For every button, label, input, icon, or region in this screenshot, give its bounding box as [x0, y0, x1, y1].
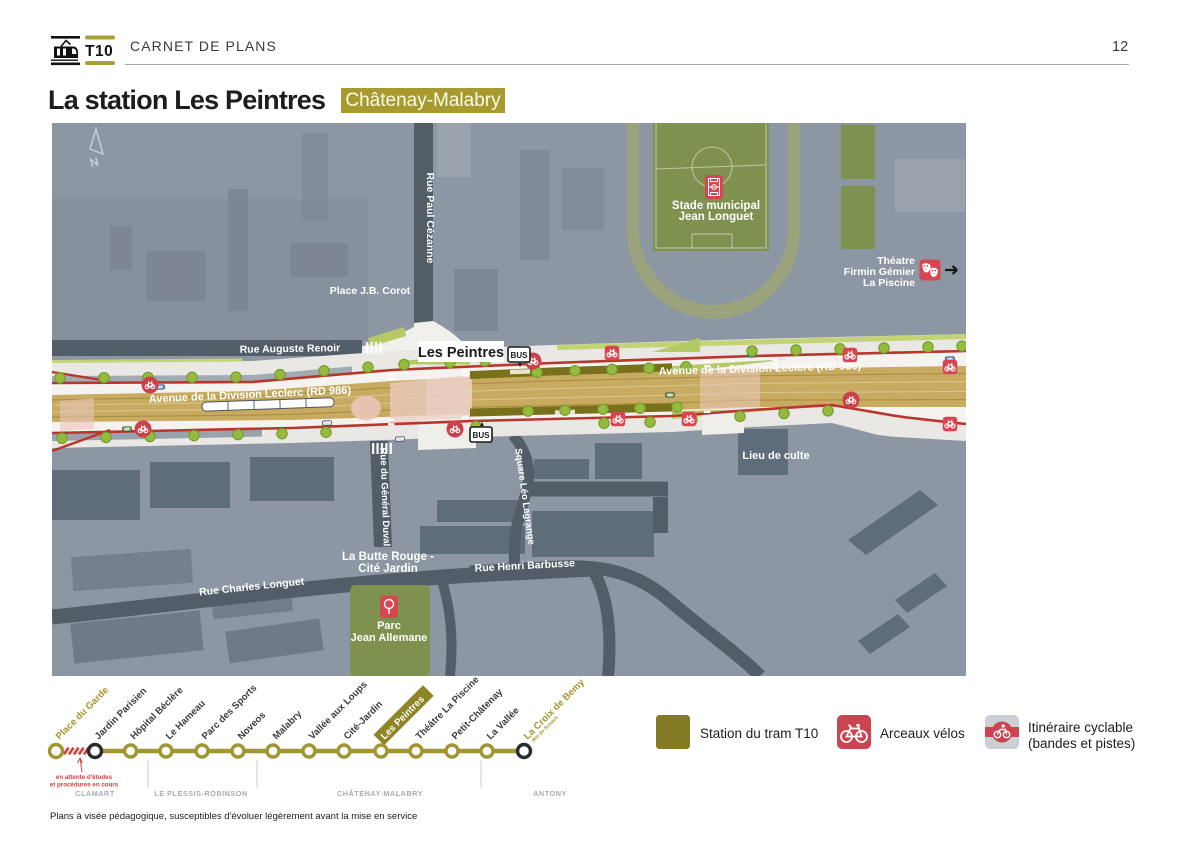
svg-text:Vallée aux Loups: Vallée aux Loups [307, 679, 370, 742]
svg-text:LE PLESSIS-ROBINSON: LE PLESSIS-ROBINSON [154, 789, 247, 798]
svg-text:La Butte Rouge -: La Butte Rouge - [342, 551, 434, 563]
svg-text:Malabry: Malabry [271, 708, 305, 742]
svg-text:Cité Jardin: Cité Jardin [358, 563, 417, 575]
svg-text:Rue Auguste Renoir: Rue Auguste Renoir [240, 342, 341, 356]
svg-text:Théâtre La Piscine: Théâtre La Piscine [414, 676, 482, 742]
svg-text:Place J.B. Corot: Place J.B. Corot [330, 285, 411, 297]
svg-text:Rue Paul Cézanne: Rue Paul Cézanne [424, 172, 436, 263]
svg-text:Itinéraire cyclable: Itinéraire cyclable [1028, 720, 1133, 735]
svg-text:Parc: Parc [377, 620, 401, 632]
svg-text:T10: T10 [85, 43, 113, 60]
svg-text:Les Peintres: Les Peintres [418, 345, 504, 361]
svg-text:La Croix de Bemy: La Croix de Bemy [522, 677, 588, 743]
svg-text:en attente d'études: en attente d'études [56, 774, 113, 781]
svg-text:Jean Longuet: Jean Longuet [679, 211, 754, 223]
svg-text:CHÂTENAY-MALABRY: CHÂTENAY-MALABRY [337, 789, 423, 798]
svg-text:(bandes et pistes): (bandes et pistes) [1028, 736, 1135, 751]
svg-text:CLAMART: CLAMART [75, 789, 115, 798]
svg-text:BUS: BUS [473, 431, 491, 440]
svg-text:Lieu de culte: Lieu de culte [742, 450, 809, 462]
svg-text:Station du tram T10: Station du tram T10 [700, 726, 818, 741]
svg-text:Noveos: Noveos [236, 710, 268, 742]
svg-text:Arceaux vélos: Arceaux vélos [880, 726, 965, 741]
svg-text:La Piscine: La Piscine [863, 277, 915, 289]
svg-text:et procédures en cours: et procédures en cours [50, 782, 119, 789]
svg-text:Jean Allemane: Jean Allemane [351, 632, 428, 644]
svg-text:La Vallée: La Vallée [485, 705, 522, 742]
svg-text:ANTONY: ANTONY [533, 789, 567, 798]
svg-text:BUS: BUS [511, 351, 529, 360]
